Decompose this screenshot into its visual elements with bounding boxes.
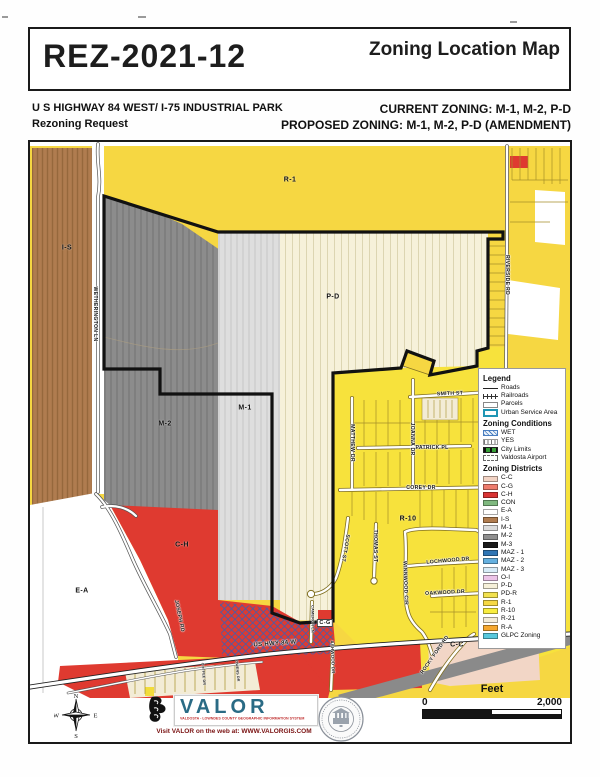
legend-item-c-c: C-C xyxy=(483,474,561,482)
valor-name: VALOR xyxy=(180,697,312,717)
scan-artifact xyxy=(510,21,517,23)
legend: Legend RoadsRailroadsParcelsUrban Servic… xyxy=(478,368,566,649)
legend-label-city-limits: City Limits xyxy=(501,447,531,454)
svg-text:N: N xyxy=(74,693,79,700)
legend-label-urban-service-area: Urban Service Area xyxy=(501,410,557,417)
symbol-railroads xyxy=(483,394,498,399)
legend-label-parcels: Parcels xyxy=(501,401,523,408)
symbol-urban-service-area xyxy=(483,409,498,417)
subheader: U S HIGHWAY 84 WEST/ I-75 INDUSTRIAL PAR… xyxy=(32,101,571,137)
county-seal-icon xyxy=(318,696,364,742)
legend-item-c-h: C-H xyxy=(483,491,561,499)
legend-general-items: RoadsRailroadsParcelsUrban Service Area xyxy=(483,384,561,417)
header-box: REZ-2021-12 Zoning Location Map xyxy=(28,27,571,91)
legend-label-glpc-zoning: GLPC Zoning xyxy=(501,633,540,640)
legend-label-valdosta-airport: Valdosta Airport xyxy=(501,455,546,462)
swatch-m-3 xyxy=(483,542,498,548)
legend-item-r-1: R-1 xyxy=(483,599,561,607)
scan-artifact xyxy=(138,16,146,18)
request-line1: U S HIGHWAY 84 WEST/ I-75 INDUSTRIAL PAR… xyxy=(32,101,283,117)
legend-label-m-3: M-3 xyxy=(501,542,512,549)
legend-item-maz-3: MAZ - 3 xyxy=(483,566,561,574)
legend-label-yes: YES xyxy=(501,438,514,445)
legend-item-maz-1: MAZ - 1 xyxy=(483,549,561,557)
symbol-wet xyxy=(483,430,498,436)
case-number: REZ-2021-12 xyxy=(43,38,246,75)
swatch-p-d xyxy=(483,583,498,589)
swatch-pd-r xyxy=(483,592,498,598)
legend-conditions-title: Zoning Conditions xyxy=(483,419,561,428)
page: REZ-2021-12 Zoning Location Map U S HIGH… xyxy=(0,0,600,777)
svg-text:E: E xyxy=(94,713,98,720)
legend-item-r-10: R-10 xyxy=(483,607,561,615)
swatch-c-c xyxy=(483,476,498,482)
map-frame: R-1I-SP-DM-1M-2R-10E-AC-HC-CC-GWETHERING… xyxy=(28,140,572,744)
scan-artifact xyxy=(2,16,8,18)
legend-condition-items: WETYESCity LimitsValdosta Airport xyxy=(483,429,561,462)
swatch-r-1 xyxy=(483,600,498,606)
symbol-roads xyxy=(483,388,498,389)
legend-label-m-1: M-1 xyxy=(501,525,512,532)
legend-item-o-i: O-I xyxy=(483,574,561,582)
valor-mark-icon xyxy=(148,695,172,727)
legend-item-m-1: M-1 xyxy=(483,524,561,532)
legend-districts-title: Zoning Districts xyxy=(483,464,561,473)
legend-item-m-3: M-3 xyxy=(483,541,561,549)
valor-tagline: VALDOSTA - LOWNDES COUNTY GEOGRAPHIC INF… xyxy=(180,717,259,721)
zoning-summary: CURRENT ZONING: M-1, M-2, P-D PROPOSED Z… xyxy=(281,101,571,133)
legend-label-r-1: R-1 xyxy=(501,600,511,607)
zone-is-region xyxy=(32,148,92,506)
swatch-glpc-zoning xyxy=(483,633,498,639)
legend-item-urban-service-area: Urban Service Area xyxy=(483,409,561,417)
symbol-city-limits xyxy=(483,447,498,453)
map-footer: N S W E VALOR VALDOSTA - LOWNDES COUNTY … xyxy=(30,683,570,740)
current-zoning: CURRENT ZONING: M-1, M-2, P-D xyxy=(281,101,571,117)
valor-logo: VALOR VALDOSTA - LOWNDES COUNTY GEOGRAPH… xyxy=(150,695,318,735)
legend-label-m-2: M-2 xyxy=(501,533,512,540)
symbol-valdosta-airport xyxy=(483,455,498,461)
legend-label-r-10: R-10 xyxy=(501,608,515,615)
legend-label-railroads: Railroads xyxy=(501,393,528,400)
legend-label-maz-1: MAZ - 1 xyxy=(501,550,524,557)
legend-item-e-a: E-A xyxy=(483,508,561,516)
swatch-r-21 xyxy=(483,617,498,623)
legend-item-yes: YES xyxy=(483,437,561,445)
zone-m2-region xyxy=(104,196,218,510)
scale-max: 2,000 xyxy=(537,697,562,708)
legend-item-r-21: R-21 xyxy=(483,615,561,623)
legend-label-con: CON xyxy=(501,500,515,507)
legend-label-roads: Roads xyxy=(501,385,520,392)
page-title: Zoning Location Map xyxy=(369,39,560,61)
legend-title: Legend xyxy=(483,374,561,383)
swatch-r-10 xyxy=(483,608,498,614)
legend-label-c-h: C-H xyxy=(501,492,513,499)
zone-cg-parcel xyxy=(318,610,333,627)
swatch-c-h xyxy=(483,492,498,498)
request-description: U S HIGHWAY 84 WEST/ I-75 INDUSTRIAL PAR… xyxy=(32,101,283,133)
swatch-maz-2 xyxy=(483,558,498,564)
legend-label-maz-2: MAZ - 2 xyxy=(501,558,524,565)
swatch-o-i xyxy=(483,575,498,581)
legend-label-c-c: C-C xyxy=(501,475,513,482)
legend-item-wet: WET xyxy=(483,429,561,437)
swatch-maz-1 xyxy=(483,550,498,556)
valor-web: Visit VALOR on the web at: WWW.VALORGIS.… xyxy=(150,728,318,735)
legend-item-pd-r: PD-R xyxy=(483,591,561,599)
legend-label-maz-3: MAZ - 3 xyxy=(501,567,524,574)
scale-min: 0 xyxy=(422,697,428,708)
legend-label-p-d: P-D xyxy=(501,583,512,590)
legend-label-i-s: I-S xyxy=(501,517,509,524)
compass-rose-icon: N S W E xyxy=(54,691,98,739)
legend-label-r-21: R-21 xyxy=(501,616,515,623)
legend-item-c-g: C-G xyxy=(483,483,561,491)
legend-district-items: C-CC-GC-HCONE-AI-SM-1M-2M-3MAZ - 1MAZ - … xyxy=(483,474,561,640)
legend-item-m-2: M-2 xyxy=(483,532,561,540)
swatch-e-a xyxy=(483,509,498,515)
legend-label-c-g: C-G xyxy=(501,484,513,491)
symbol-yes xyxy=(483,439,498,445)
legend-item-glpc-zoning: GLPC Zoning xyxy=(483,632,561,640)
legend-item-i-s: I-S xyxy=(483,516,561,524)
legend-item-city-limits: City Limits xyxy=(483,446,561,454)
legend-item-railroads: Railroads xyxy=(483,392,561,400)
swatch-r-a xyxy=(483,625,498,631)
swatch-maz-3 xyxy=(483,567,498,573)
legend-item-p-d: P-D xyxy=(483,582,561,590)
request-line2: Rezoning Request xyxy=(32,117,283,133)
legend-label-wet: WET xyxy=(501,430,515,437)
valor-box: VALOR VALDOSTA - LOWNDES COUNTY GEOGRAPH… xyxy=(174,695,318,726)
legend-item-roads: Roads xyxy=(483,384,561,392)
legend-item-parcels: Parcels xyxy=(483,401,561,409)
symbol-parcels xyxy=(483,402,498,408)
scale-bar: Feet 0 2,000 xyxy=(422,683,562,719)
scale-bar-graphic xyxy=(422,709,562,719)
svg-text:W: W xyxy=(54,713,60,720)
legend-item-valdosta-airport: Valdosta Airport xyxy=(483,454,561,462)
swatch-i-s xyxy=(483,517,498,523)
legend-label-r-a: R-A xyxy=(501,625,512,632)
smith-cream-parcel xyxy=(422,398,458,420)
legend-item-maz-2: MAZ - 2 xyxy=(483,557,561,565)
swatch-con xyxy=(483,500,498,506)
legend-label-o-i: O-I xyxy=(501,575,510,582)
swatch-m-1 xyxy=(483,525,498,531)
legend-label-pd-r: PD-R xyxy=(501,591,517,598)
scale-unit-label: Feet xyxy=(422,683,562,695)
legend-item-con: CON xyxy=(483,499,561,507)
legend-label-e-a: E-A xyxy=(501,508,512,515)
swatch-c-g xyxy=(483,484,498,490)
legend-item-r-a: R-A xyxy=(483,624,561,632)
svg-text:S: S xyxy=(74,733,78,739)
proposed-zoning: PROPOSED ZONING: M-1, M-2, P-D (AMENDMEN… xyxy=(281,117,571,133)
swatch-m-2 xyxy=(483,534,498,540)
